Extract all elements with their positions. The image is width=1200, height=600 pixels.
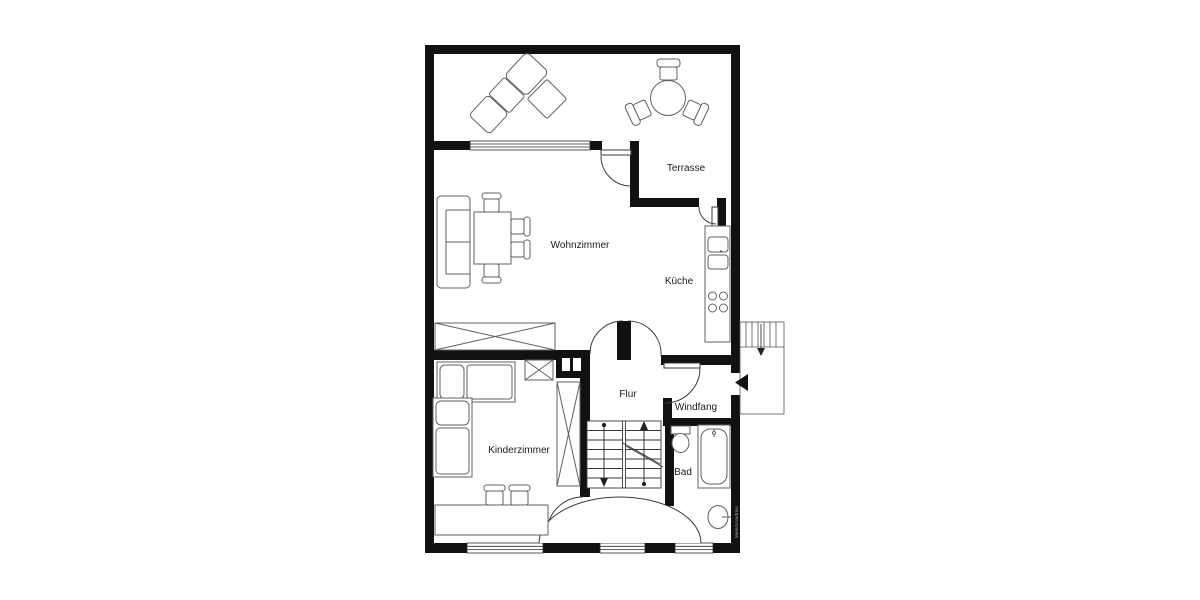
- label-kinderzimmer: Kinderzimmer: [488, 445, 550, 456]
- wall-mid-left: [425, 350, 556, 360]
- wall-front-1: [425, 141, 470, 150]
- chimney-flue-1: [562, 358, 570, 371]
- arch-flur-bottom: [539, 497, 701, 543]
- bed-horizontal: [437, 362, 515, 402]
- label-kueche: Küche: [665, 276, 694, 287]
- label-wohnzimmer: Wohnzimmer: [551, 240, 610, 251]
- wall-front-2: [590, 141, 602, 150]
- wall-kitchen-top: [630, 198, 699, 207]
- window-kinderzimmer: [467, 543, 543, 553]
- staircase: [587, 421, 663, 488]
- window-bad: [675, 543, 713, 553]
- wall-top: [425, 45, 740, 54]
- kitchen-counter: [705, 226, 730, 342]
- wall-bottom-1: [425, 543, 467, 553]
- entrance-platform: [740, 322, 784, 414]
- dining-table-set: [474, 193, 530, 283]
- label-terrasse: Terrasse: [667, 163, 706, 174]
- dining-chair-top: [482, 193, 501, 212]
- sofa: [437, 196, 470, 288]
- dining-chair-right-1: [511, 217, 530, 236]
- wall-bottom-3: [645, 543, 675, 553]
- dining-chair-bottom: [482, 264, 501, 283]
- dining-table: [474, 212, 511, 264]
- bed-vertical: [433, 398, 472, 477]
- door-terrace-kueche: [699, 207, 718, 226]
- terrace-table-set: [624, 59, 709, 126]
- label-flur: Flur: [619, 389, 637, 400]
- floor-plan-canvas: Terrasse Wohnzimmer Küche Flur Windfang …: [0, 0, 1200, 600]
- window-living-room: [470, 141, 590, 150]
- watermark-text: MeinGrundriss: [734, 506, 739, 538]
- wall-bottom-2: [543, 543, 600, 553]
- wall-bottom-4: [713, 543, 740, 553]
- window-flur: [600, 543, 645, 553]
- round-table: [651, 81, 686, 116]
- label-windfang: Windfang: [675, 402, 717, 413]
- wash-basin: [708, 506, 731, 529]
- desk-chair-1: [484, 485, 505, 505]
- toilet: [671, 426, 690, 453]
- stair-divider: [623, 421, 626, 488]
- wall-right-upper: [731, 45, 740, 373]
- terrace-chair-top: [657, 59, 680, 80]
- label-bad: Bad: [674, 467, 692, 478]
- wardrobe-small: [525, 360, 553, 380]
- wardrobe-tall: [557, 382, 580, 486]
- double-door-mullion: [617, 321, 631, 360]
- dining-chair-right-2: [511, 240, 530, 259]
- terrace-chair-left: [624, 97, 653, 127]
- bathtub: [698, 425, 730, 488]
- floor-plan-drawing: Terrasse Wohnzimmer Küche Flur Windfang …: [0, 0, 1200, 600]
- door-flur-windfang: [664, 363, 700, 403]
- desk: [435, 505, 548, 535]
- sideboard: [435, 323, 555, 350]
- door-terrace-wohnzimmer: [601, 150, 631, 186]
- wall-bad-left: [665, 426, 674, 506]
- chimney-flue-2: [573, 358, 581, 371]
- entrance-area: [735, 322, 784, 414]
- desk-chair-2: [509, 485, 530, 505]
